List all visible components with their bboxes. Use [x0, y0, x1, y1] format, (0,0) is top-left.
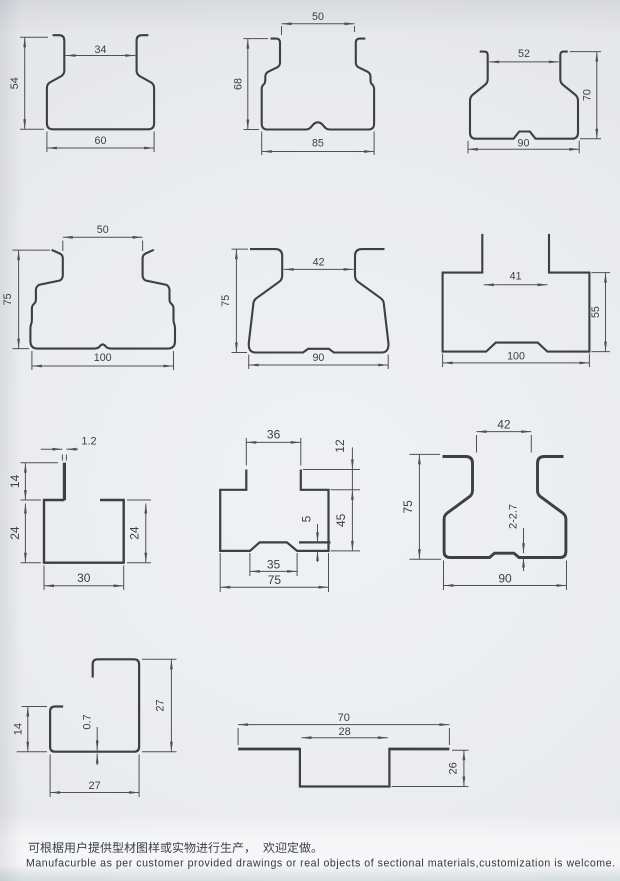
svg-text:85: 85 [312, 137, 324, 149]
svg-text:36: 36 [267, 428, 281, 442]
svg-text:54: 54 [9, 77, 21, 89]
svg-text:1.2: 1.2 [81, 436, 96, 448]
svg-text:42: 42 [313, 256, 325, 268]
svg-text:70: 70 [338, 712, 350, 724]
svg-text:75: 75 [268, 573, 282, 587]
svg-text:35: 35 [267, 557, 281, 571]
svg-text:24: 24 [128, 526, 142, 540]
svg-text:45: 45 [334, 513, 348, 527]
svg-text:12: 12 [333, 439, 347, 453]
svg-text:60: 60 [95, 135, 107, 147]
svg-text:2-2.7: 2-2.7 [508, 504, 520, 529]
svg-text:50: 50 [312, 11, 324, 23]
svg-text:68: 68 [232, 78, 244, 90]
svg-text:75: 75 [2, 293, 14, 305]
svg-text:41: 41 [510, 271, 522, 283]
svg-text:27: 27 [155, 699, 167, 711]
svg-text:55: 55 [590, 306, 602, 318]
svg-text:75: 75 [401, 500, 415, 514]
svg-text:26: 26 [447, 762, 459, 774]
svg-text:0.7: 0.7 [82, 714, 94, 729]
svg-text:34: 34 [95, 44, 107, 56]
svg-text:50: 50 [97, 224, 109, 236]
svg-text:5: 5 [300, 515, 314, 522]
svg-text:14: 14 [8, 474, 22, 488]
svg-text:42: 42 [497, 417, 511, 431]
svg-text:90: 90 [498, 572, 512, 586]
svg-text:14: 14 [12, 723, 24, 735]
svg-text:27: 27 [88, 780, 100, 792]
svg-text:52: 52 [518, 48, 530, 60]
svg-text:28: 28 [338, 726, 350, 738]
svg-text:30: 30 [77, 571, 91, 585]
svg-text:90: 90 [518, 137, 530, 149]
svg-text:70: 70 [581, 89, 593, 101]
svg-text:24: 24 [8, 526, 22, 540]
svg-text:75: 75 [220, 295, 232, 307]
svg-text:100: 100 [94, 352, 112, 364]
svg-text:90: 90 [312, 352, 324, 364]
svg-text:100: 100 [507, 350, 525, 362]
svg-text:Manufacurble as per customer p: Manufacurble as per customer provided dr… [26, 858, 615, 870]
